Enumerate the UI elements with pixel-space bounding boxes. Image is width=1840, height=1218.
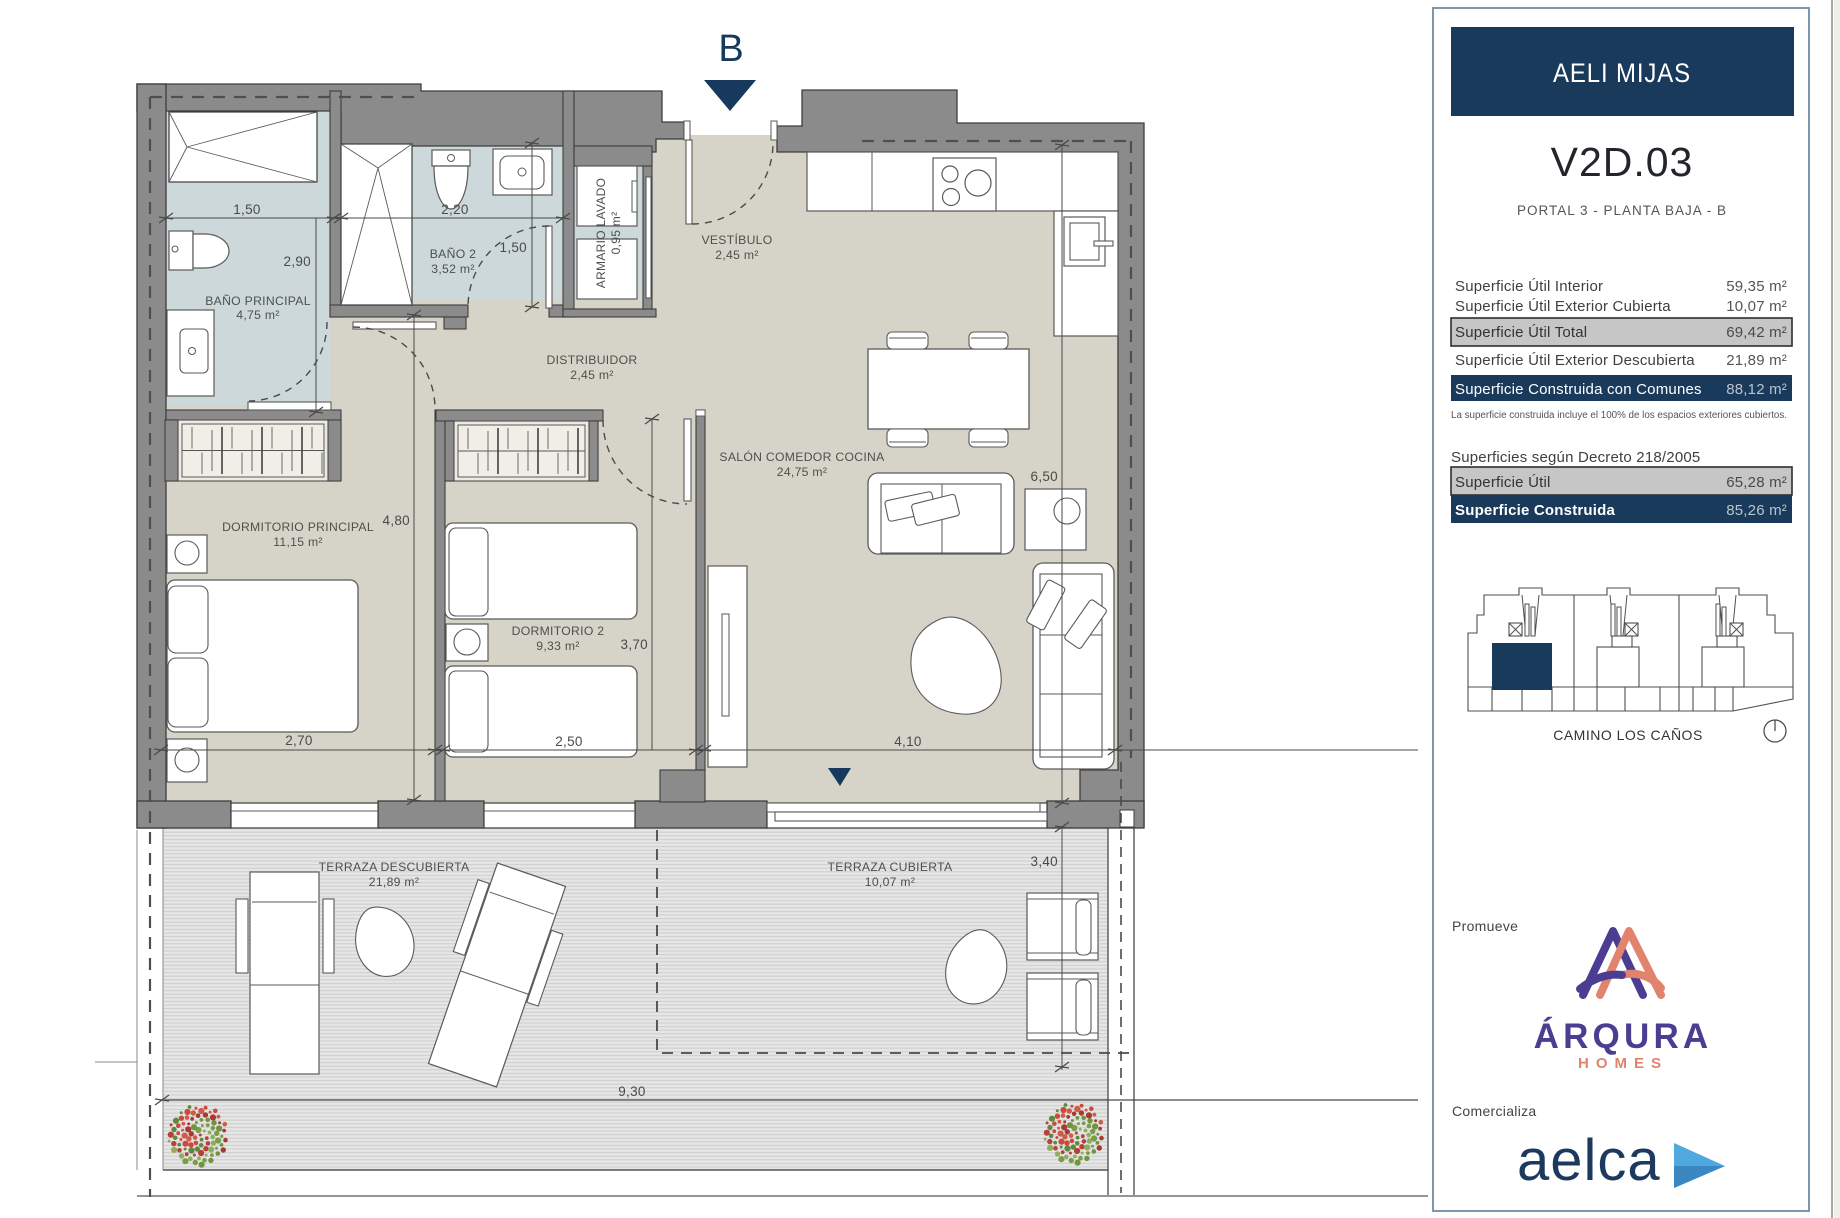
svg-text:10,07 m²: 10,07 m² (865, 875, 916, 889)
svg-text:Comercializa: Comercializa (1452, 1103, 1537, 1119)
svg-text:ARMARIO LAVADO: ARMARIO LAVADO (594, 178, 608, 288)
svg-text:1,50: 1,50 (500, 240, 527, 255)
svg-text:2,20: 2,20 (441, 202, 468, 217)
svg-text:0,95 m²: 0,95 m² (609, 212, 623, 255)
svg-text:B: B (718, 28, 743, 70)
svg-text:aelca: aelca (1517, 1128, 1661, 1193)
svg-text:3,40: 3,40 (1031, 854, 1058, 869)
svg-text:10,07 m²: 10,07 m² (1726, 298, 1787, 315)
svg-text:3,70: 3,70 (621, 637, 648, 652)
svg-text:Superficie Útil Total: Superficie Útil Total (1455, 324, 1587, 341)
svg-text:AELI MIJAS: AELI MIJAS (1553, 58, 1691, 88)
svg-text:Superficie Construida con Comu: Superficie Construida con Comunes (1455, 381, 1702, 398)
svg-text:PORTAL 3 - PLANTA BAJA - B: PORTAL 3 - PLANTA BAJA - B (1517, 203, 1727, 218)
svg-text:9,30: 9,30 (618, 1084, 645, 1099)
svg-text:DORMITORIO PRINCIPAL: DORMITORIO PRINCIPAL (222, 520, 374, 534)
svg-text:2,45 m²: 2,45 m² (570, 368, 613, 382)
svg-text:65,28 m²: 65,28 m² (1726, 474, 1787, 491)
svg-text:4,75 m²: 4,75 m² (236, 308, 279, 322)
svg-text:6,50: 6,50 (1031, 469, 1058, 484)
svg-text:Superficie Útil: Superficie Útil (1455, 474, 1551, 491)
svg-text:21,89 m²: 21,89 m² (1726, 352, 1787, 369)
svg-text:DISTRIBUIDOR: DISTRIBUIDOR (547, 353, 638, 367)
svg-text:Superficie Útil Exterior Descu: Superficie Útil Exterior Descubierta (1455, 352, 1695, 369)
svg-text:DORMITORIO 2: DORMITORIO 2 (512, 624, 605, 638)
svg-text:TERRAZA CUBIERTA: TERRAZA CUBIERTA (828, 860, 953, 874)
svg-text:24,75 m²: 24,75 m² (777, 465, 828, 479)
svg-text:9,33 m²: 9,33 m² (536, 639, 579, 653)
svg-text:1,50: 1,50 (233, 202, 260, 217)
svg-text:Superficie Útil Exterior Cubie: Superficie Útil Exterior Cubierta (1455, 298, 1671, 315)
svg-text:2,70: 2,70 (285, 733, 312, 748)
svg-text:2,50: 2,50 (555, 734, 582, 749)
svg-text:59,35 m²: 59,35 m² (1726, 278, 1787, 295)
svg-text:Superficie Construida: Superficie Construida (1455, 502, 1616, 519)
svg-text:BAÑO PRINCIPAL: BAÑO PRINCIPAL (205, 294, 311, 308)
svg-text:2,90: 2,90 (284, 254, 311, 269)
svg-text:La superficie construida inclu: La superficie construida incluye el 100%… (1451, 410, 1787, 421)
svg-text:69,42 m²: 69,42 m² (1726, 324, 1787, 341)
svg-text:V2D.03: V2D.03 (1551, 139, 1694, 185)
svg-text:88,12 m²: 88,12 m² (1726, 381, 1787, 398)
svg-text:2,45 m²: 2,45 m² (715, 248, 758, 262)
svg-text:3,52 m²: 3,52 m² (431, 262, 474, 276)
svg-text:VESTÍBULO: VESTÍBULO (701, 232, 772, 247)
svg-text:TERRAZA DESCUBIERTA: TERRAZA DESCUBIERTA (319, 860, 470, 874)
svg-text:4,80: 4,80 (383, 513, 410, 528)
svg-text:BAÑO 2: BAÑO 2 (430, 247, 477, 261)
svg-text:CAMINO LOS CAÑOS: CAMINO LOS CAÑOS (1553, 727, 1703, 743)
svg-text:Promueve: Promueve (1452, 918, 1518, 934)
svg-text:SALÓN COMEDOR COCINA: SALÓN COMEDOR COCINA (719, 449, 885, 464)
svg-text:HOMES: HOMES (1578, 1055, 1668, 1072)
svg-text:ÁRQURA: ÁRQURA (1534, 1016, 1713, 1056)
svg-text:11,15 m²: 11,15 m² (273, 535, 323, 549)
svg-text:Superficies según Decreto 218/: Superficies según Decreto 218/2005 (1451, 449, 1700, 466)
svg-text:85,26 m²: 85,26 m² (1726, 502, 1787, 519)
svg-text:Superficie Útil Interior: Superficie Útil Interior (1455, 278, 1603, 295)
svg-text:4,10: 4,10 (894, 734, 921, 749)
svg-text:21,89 m²: 21,89 m² (369, 875, 420, 889)
